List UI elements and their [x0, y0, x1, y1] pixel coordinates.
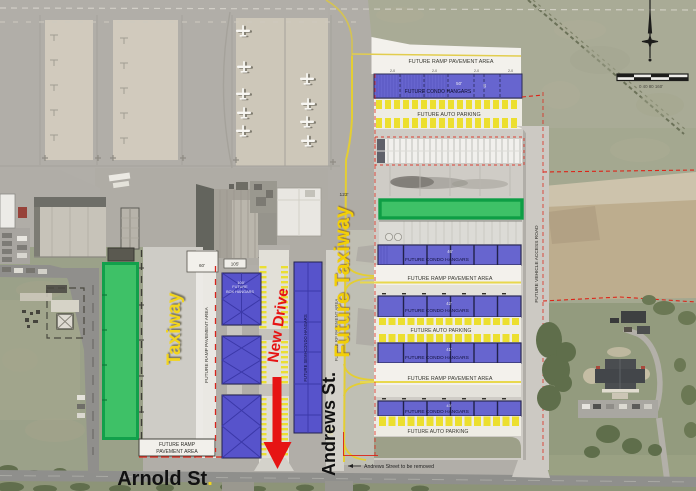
svg-text:2-0: 2-0: [508, 69, 513, 73]
svg-text:FUTURE RAMP PAVEMENT AREA: FUTURE RAMP PAVEMENT AREA: [204, 306, 210, 382]
svg-text:41': 41': [446, 347, 452, 352]
svg-text:Taxiway: Taxiway: [164, 292, 185, 365]
svg-text:FUTURE RAMP PAVEMENT AREA: FUTURE RAMP PAVEMENT AREA: [409, 59, 494, 65]
svg-text:46': 46': [447, 249, 453, 254]
svg-text:2-0: 2-0: [432, 69, 437, 73]
svg-text:FUTURE CONDO HANGARS: FUTURE CONDO HANGARS: [405, 257, 469, 263]
svg-text:PAVEMENT AREA: PAVEMENT AREA: [156, 449, 198, 455]
svg-text:0 40 80 160': 0 40 80 160': [639, 84, 663, 89]
svg-text:Andrews St.: Andrews St.: [319, 372, 339, 476]
svg-text:Andrews Street to be removed: Andrews Street to be removed: [364, 464, 434, 470]
svg-text:FUTURE CONDO HANGARS: FUTURE CONDO HANGARS: [405, 355, 469, 361]
svg-text:100': 100': [237, 280, 245, 285]
svg-text:FUTURE AUTO PARKING: FUTURE AUTO PARKING: [417, 112, 480, 118]
svg-text:123': 123': [340, 192, 349, 198]
svg-text:42': 42': [446, 301, 452, 306]
svg-text:FUTURE AUTO PARKING: FUTURE AUTO PARKING: [411, 328, 472, 334]
svg-text:FUTURE RAMP PAVEMENT AREA: FUTURE RAMP PAVEMENT AREA: [408, 276, 493, 282]
svg-text:45: 45: [482, 83, 487, 88]
svg-text:2-0: 2-0: [390, 69, 395, 73]
svg-text:FUTURE CONDO HANGARS: FUTURE CONDO HANGARS: [405, 409, 469, 415]
svg-text:Future Taxiway: Future Taxiway: [331, 206, 354, 358]
svg-text:60': 60': [199, 263, 205, 268]
svg-text:FUTURE SEMI-CONDO HANGARS: FUTURE SEMI-CONDO HANGARS: [303, 314, 308, 381]
svg-text:BOX HANGARS: BOX HANGARS: [226, 290, 254, 294]
svg-text:FUTURE VEHICLE ACCESS ROAD: FUTURE VEHICLE ACCESS ROAD: [534, 225, 540, 303]
svg-text:FUTURE AUTO PARKING: FUTURE AUTO PARKING: [408, 429, 469, 435]
svg-text:50': 50': [456, 81, 462, 86]
svg-text:FUTURE CONDO HANGARS: FUTURE CONDO HANGARS: [405, 89, 472, 95]
svg-text:2-0: 2-0: [474, 69, 479, 73]
svg-text:FUTURE: FUTURE: [232, 285, 248, 289]
svg-text:FUTURE RAMP: FUTURE RAMP: [159, 442, 196, 448]
svg-text:105': 105': [231, 262, 240, 267]
svg-text:43': 43': [446, 403, 451, 408]
svg-text:FUTURE CONDO HANGARS: FUTURE CONDO HANGARS: [405, 308, 469, 314]
svg-text:Arnold St.: Arnold St.: [117, 468, 213, 490]
